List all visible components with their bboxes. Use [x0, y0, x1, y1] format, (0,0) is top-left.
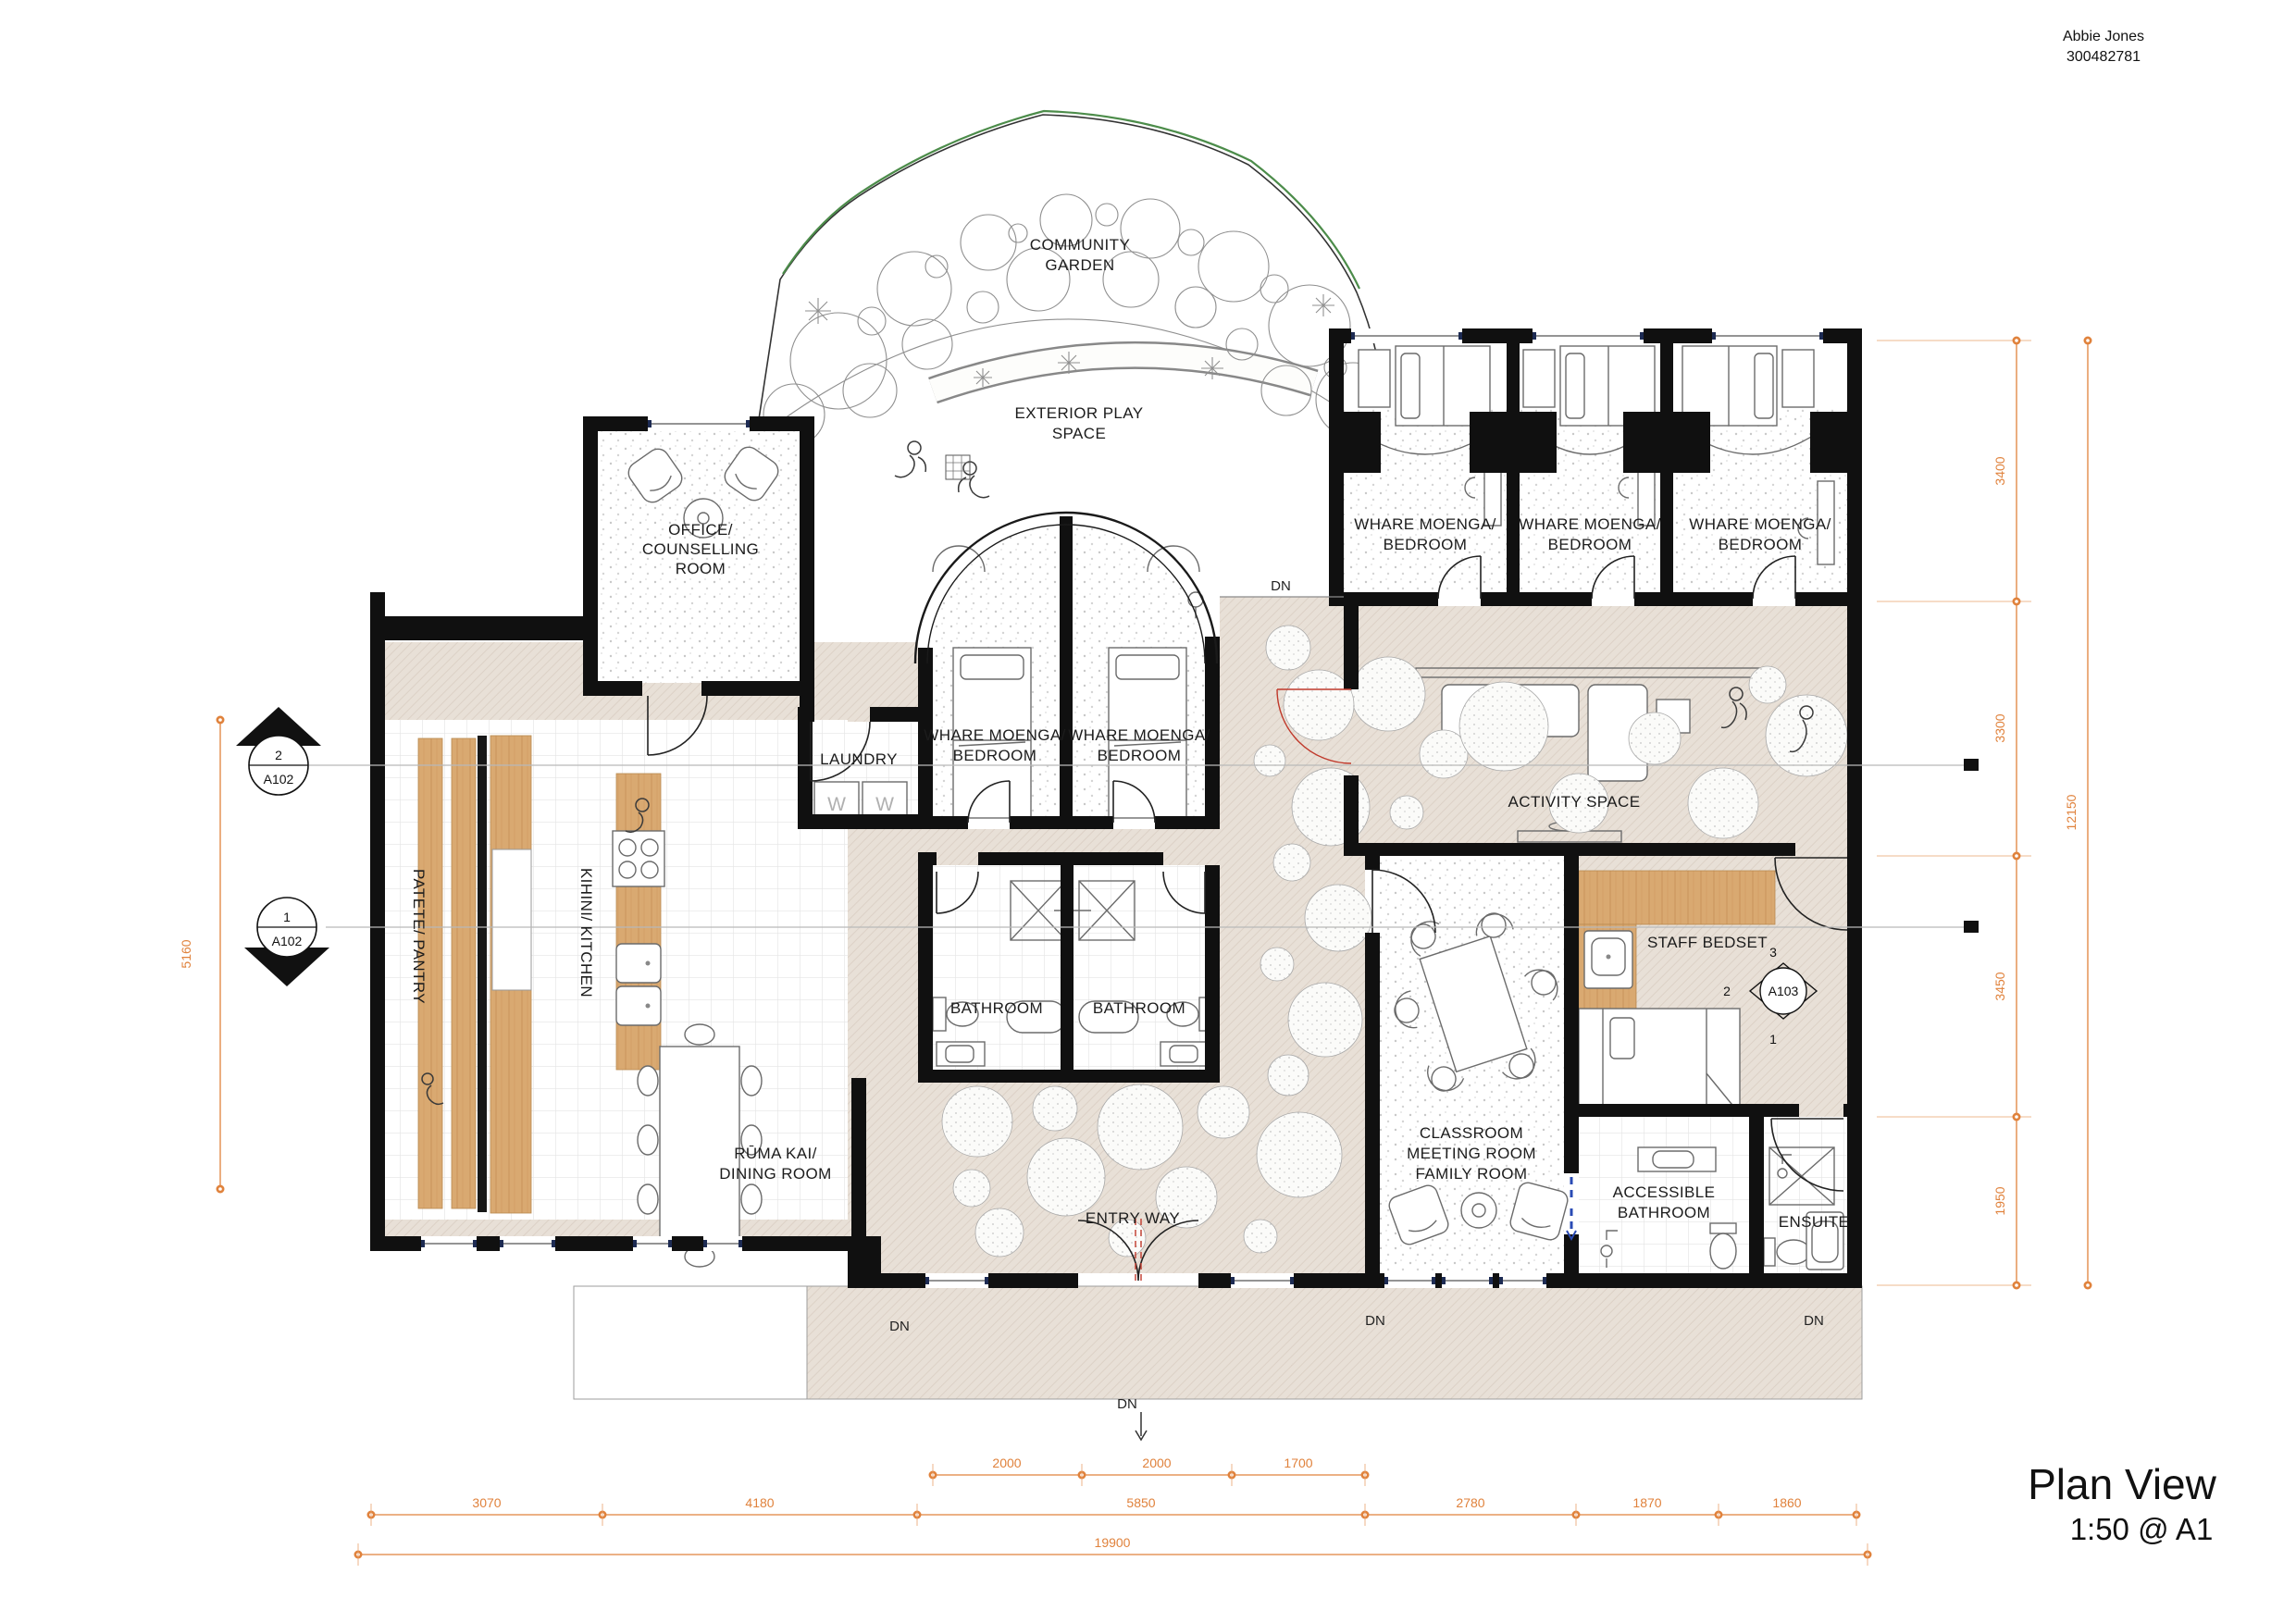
label-community-garden: COMMUNITYGARDEN: [1030, 236, 1130, 274]
label-bathroom-left: BATHROOM: [950, 999, 1043, 1017]
marker-number: 1: [283, 910, 291, 924]
label-activity-space: ACTIVITY SPACE: [1508, 793, 1641, 811]
sheet-author: Abbie Jones: [2063, 29, 2144, 44]
window: [421, 1236, 477, 1251]
label-classroom: CLASSROOMMEETING ROOMFAMILY ROOM: [1407, 1124, 1536, 1183]
dim-1860: 1860: [1772, 1495, 1801, 1510]
window: [633, 1236, 672, 1251]
marker-sheet: A102: [272, 934, 303, 948]
sink-2: [616, 986, 661, 1025]
window: [1351, 328, 1462, 343]
label-dn-porch-left: DN: [889, 1319, 910, 1334]
sheet-title: Plan View: [2028, 1460, 2217, 1508]
stove: [613, 831, 664, 886]
dim-2780: 2780: [1456, 1495, 1484, 1510]
marker-top-number: 3: [1769, 945, 1777, 960]
dim-2000b: 2000: [1142, 1456, 1171, 1470]
dim-5160: 5160: [179, 939, 193, 968]
label-dn-corridor: DN: [1271, 578, 1291, 594]
dim-4180: 4180: [745, 1495, 774, 1510]
dim-1870: 1870: [1632, 1495, 1661, 1510]
sheet-student-id: 300482781: [2066, 49, 2141, 65]
community-garden-area: [757, 111, 1390, 445]
exterior-play-space: [895, 441, 989, 498]
dim-5850: 5850: [1126, 1495, 1155, 1510]
marker-number: 2: [275, 748, 282, 762]
staff-kitchenette: [1579, 871, 1775, 924]
marker-sheet: A103: [1769, 984, 1799, 998]
sink-1: [616, 944, 661, 983]
label-pantry: PATETE/ PANTRY: [410, 869, 428, 1004]
dim-2000a: 2000: [992, 1456, 1021, 1470]
dim-3300: 3300: [1992, 713, 2007, 742]
floor-plan-sheet: 2 A102 1 A102 A103 3 2 1 COMMUNITYGARDEN…: [0, 0, 2296, 1623]
label-dn-porch-bottom: DN: [1117, 1396, 1137, 1412]
label-entry-way: ENTRY WAY: [1086, 1209, 1180, 1227]
window: [500, 1236, 555, 1251]
label-staff-bedset: STAFF BEDSET: [1647, 934, 1768, 951]
label-washer-right: W: [875, 794, 894, 815]
dim-3450: 3450: [1992, 972, 2007, 1000]
label-ensuite: ENSUITE: [1779, 1213, 1849, 1231]
label-dn-porch-mid: DN: [1365, 1313, 1385, 1329]
dim-12150: 12150: [2064, 794, 2079, 830]
dim-1950: 1950: [1992, 1186, 2007, 1215]
floor-plan-canvas: 2 A102 1 A102 A103 3 2 1 COMMUNITYGARDEN…: [0, 0, 2296, 1623]
window: [925, 1273, 988, 1288]
window: [648, 416, 750, 431]
section-marker-1-A102: 1 A102: [244, 898, 329, 986]
label-dn-porch-right: DN: [1804, 1313, 1824, 1329]
window: [703, 1236, 742, 1251]
playing-children-figures: [895, 441, 989, 498]
label-washer-left: W: [827, 794, 846, 815]
marker-left-number: 2: [1723, 984, 1731, 998]
dim-19900: 19900: [1095, 1535, 1131, 1550]
label-kitchen: KIHINI/ KITCHEN: [577, 868, 595, 997]
bedrooms-floor: [1344, 407, 1847, 592]
dim-3070: 3070: [472, 1495, 501, 1510]
marker-bottom-number: 1: [1769, 1032, 1777, 1047]
side-deck: [574, 1286, 807, 1399]
marker-sheet: A102: [264, 772, 294, 787]
dim-3400: 3400: [1992, 456, 2007, 485]
dim-1700: 1700: [1284, 1456, 1312, 1470]
dn-arrow: [1136, 1412, 1147, 1440]
window: [1533, 328, 1644, 343]
sheet-scale: 1:50 @ A1: [2070, 1512, 2214, 1546]
section-marker-2-A102: 2 A102: [236, 707, 321, 795]
window: [1712, 328, 1823, 343]
window: [1231, 1273, 1294, 1288]
window: [1384, 1273, 1435, 1288]
label-bathroom-right: BATHROOM: [1093, 999, 1185, 1017]
window: [1499, 1273, 1546, 1288]
label-laundry: LAUNDRY: [820, 750, 898, 768]
entry-porch: [807, 1286, 1862, 1399]
window: [1442, 1273, 1493, 1288]
label-exterior-play: EXTERIOR PLAYSPACE: [1014, 404, 1143, 442]
